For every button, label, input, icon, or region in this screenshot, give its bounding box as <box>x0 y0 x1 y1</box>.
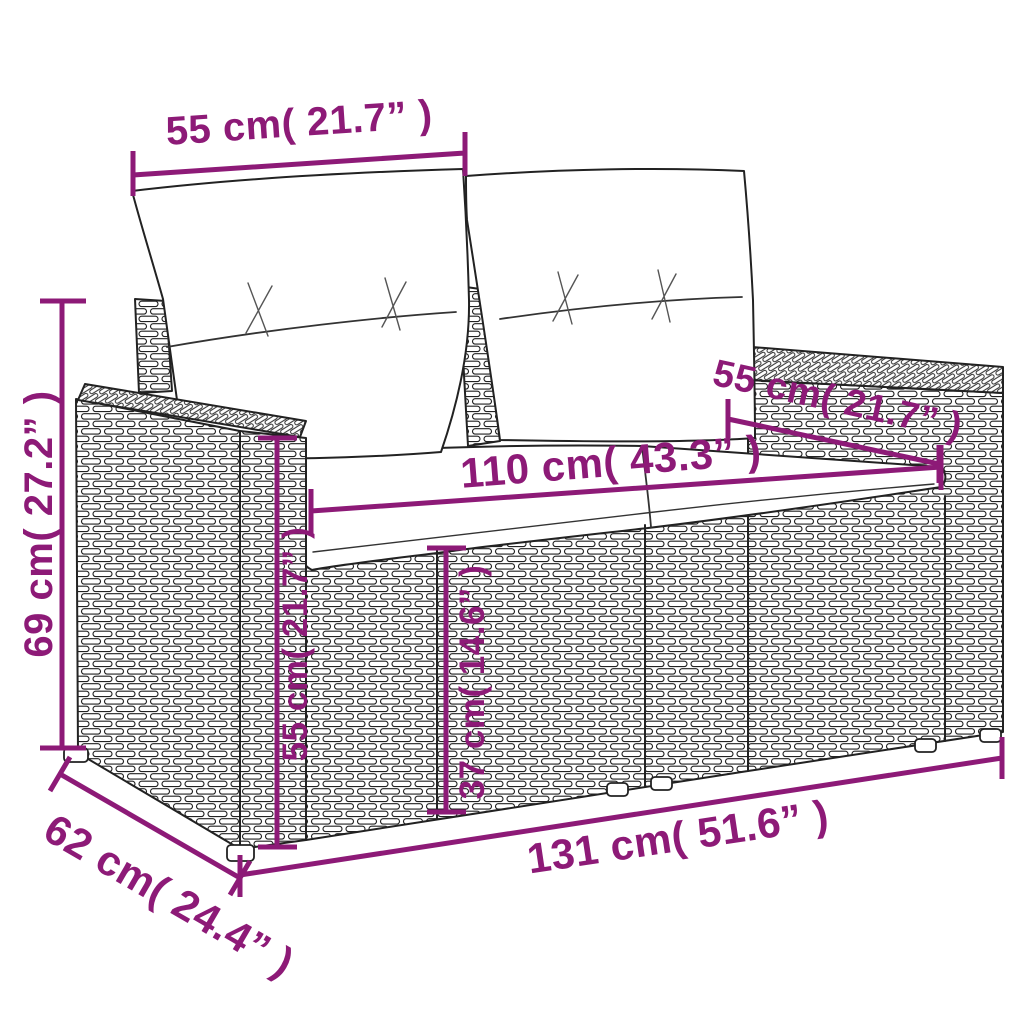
left-armrest-outer-face <box>76 399 240 849</box>
dim-label-back-width: 55 cm( 21.7” ) <box>164 92 433 154</box>
dim-label-armrest-height: 55 cm( 21.7” ) <box>276 527 315 762</box>
dim-label-seat-height: 37 cm( 14.6” ) <box>453 565 492 800</box>
product-dimension-diagram: 55 cm( 21.7” ) 69 cm( 27.2” ) 110 cm( 43… <box>0 0 1024 1024</box>
sofa-line-art: 55 cm( 21.7” ) 69 cm( 27.2” ) 110 cm( 43… <box>0 0 1024 1024</box>
right-armrest-front-face <box>748 380 1003 771</box>
dim-label-total-width: 131 cm( 51.6” ) <box>524 791 832 882</box>
dim-overall-height: 69 cm( 27.2” ) <box>17 301 86 748</box>
dim-label-height: 69 cm( 27.2” ) <box>17 390 61 657</box>
